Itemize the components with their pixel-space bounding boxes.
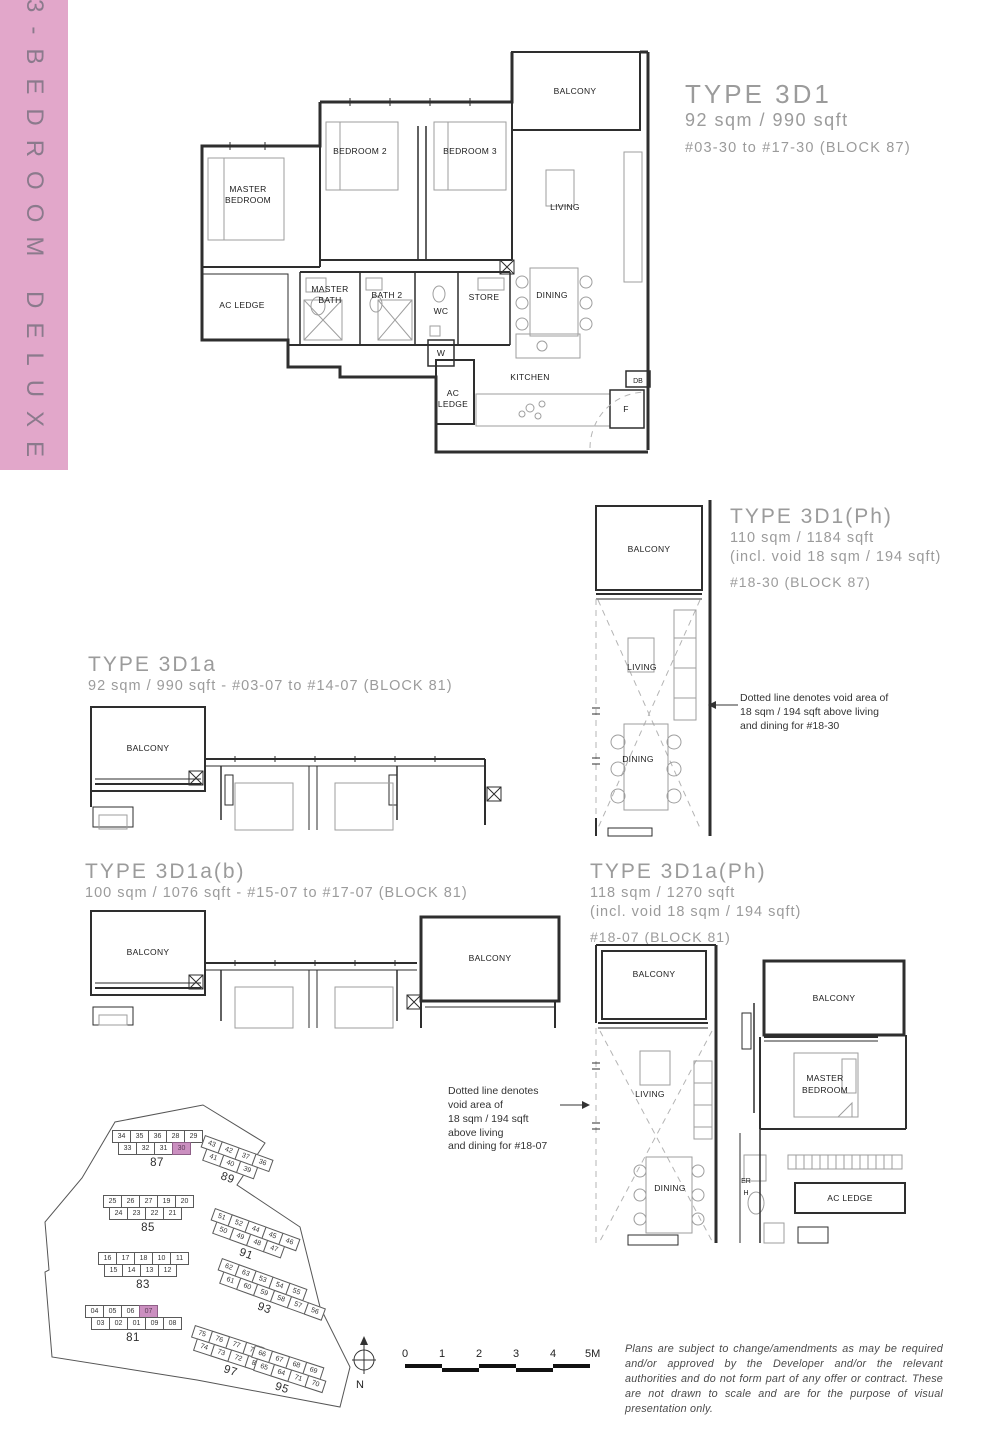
type-3d1a-title-block: TYPE 3D1a 92 sqm / 990 sqft - #03-07 to … <box>88 653 453 696</box>
siteplan-block-87: 34353628293332313087 <box>112 1130 202 1169</box>
room-label-dining: DINING <box>536 290 568 300</box>
plan-title: TYPE 3D1a(Ph) <box>590 860 801 884</box>
plan-subtitle: 92 sqm / 990 sqft - #03-07 to #14-07 (BL… <box>88 677 453 696</box>
siteplan-unit-33: 33 <box>118 1142 137 1155</box>
floorplan-type-3d1aph: BALCONY BALCONY LIVING DINING MASTER BED… <box>588 943 960 1245</box>
room-label-bedroom2: BEDROOM 2 <box>333 146 387 156</box>
north-label: N <box>356 1379 364 1391</box>
scale-tick: 1 <box>439 1348 445 1360</box>
room-label-master-bedroom: MASTER <box>229 184 266 194</box>
category-banner: 3-BEDROOM DELUXE <box>0 0 68 470</box>
room-label-master-bath-2: BATH <box>318 295 341 305</box>
void-note-line: and dining for #18-07 <box>448 1140 560 1154</box>
siteplan-block-label-87: 87 <box>112 1157 202 1169</box>
room-label-wc: WC <box>434 306 449 316</box>
siteplan-unit-01: 01 <box>127 1317 146 1330</box>
siteplan-unit-09: 09 <box>145 1317 164 1330</box>
siteplan-unit-08: 08 <box>163 1317 182 1330</box>
siteplan-unit-13: 13 <box>140 1264 159 1277</box>
scale-segment <box>553 1364 590 1368</box>
floorplan-type-3d1ph: BALCONY LIVING DINING <box>588 498 718 838</box>
plan-title: TYPE 3D1a(b) <box>85 860 468 884</box>
type-3d1ab-title-block: TYPE 3D1a(b) 100 sqm / 1076 sqft - #15-0… <box>85 860 468 903</box>
siteplan-unit-31: 31 <box>154 1142 173 1155</box>
room-label-fridge: F <box>623 404 629 414</box>
scale-segment <box>516 1368 553 1372</box>
scale-segment <box>479 1364 516 1368</box>
room-label-db: DB <box>633 378 643 385</box>
category-banner-label: 3-BEDROOM DELUXE <box>20 0 48 471</box>
room-label-balcony: BALCONY <box>127 947 170 957</box>
scale-tick: 0 <box>402 1348 408 1360</box>
void-note-line: Dotted line denotes void area of <box>448 1085 560 1113</box>
floorplan-type-3d1ab: BALCONY BALCONY <box>85 903 565 1028</box>
scale-tick: 4 <box>550 1348 556 1360</box>
scale-tick: 3 <box>513 1348 519 1360</box>
void-note-3d1ph: Dotted line denotes void area of 18 sqm … <box>740 692 920 734</box>
siteplan-unit-23: 23 <box>127 1207 146 1220</box>
void-note-arrow <box>560 1100 590 1110</box>
room-label-store: STORE <box>469 292 500 302</box>
room-label-fragment: ER <box>741 1178 751 1185</box>
void-note-3d1aph: Dotted line denotes void area of 18 sqm … <box>448 1085 560 1154</box>
room-label-master-bedroom-2: BEDROOM <box>802 1085 848 1095</box>
plan-void: (incl. void 18 sqm / 194 sqft) <box>590 903 801 922</box>
type-3d1aph-title-block: TYPE 3D1a(Ph) 118 sqm / 1270 sqft (incl.… <box>590 860 801 945</box>
room-label-ac-ledge2: AC <box>447 388 459 398</box>
north-arrow-icon: N <box>346 1336 382 1392</box>
floorplan-type-3d1a: BALCONY <box>85 695 505 830</box>
siteplan-unit-14: 14 <box>122 1264 141 1277</box>
siteplan-block-81: 04050607030201090881 <box>85 1305 181 1344</box>
siteplan-block-label-83: 83 <box>98 1279 188 1291</box>
siteplan-unit-22: 22 <box>145 1207 164 1220</box>
siteplan-unit-21: 21 <box>163 1207 182 1220</box>
void-note-arrow <box>708 700 738 710</box>
room-label-balcony: BALCONY <box>554 86 597 96</box>
room-label-living: LIVING <box>635 1089 665 1099</box>
room-label-living: LIVING <box>550 202 580 212</box>
scale-segment <box>442 1368 479 1372</box>
scale-bar: 0 1 2 3 4 5M <box>405 1348 601 1376</box>
room-label-living: LIVING <box>627 662 657 672</box>
siteplan-unit-24: 24 <box>109 1207 128 1220</box>
plan-area: 110 sqm / 1184 sqft <box>730 529 941 548</box>
room-label-washer: W <box>437 348 445 358</box>
scale-tick: 2 <box>476 1348 482 1360</box>
window-marker-icon <box>189 771 203 785</box>
room-label-ac-ledge2-2: LEDGE <box>438 399 468 409</box>
plan-title: TYPE 3D1 <box>685 80 911 109</box>
window-marker-icon <box>407 995 421 1009</box>
room-label-dining: DINING <box>654 1183 686 1193</box>
room-label-ac-ledge: AC LEDGE <box>827 1193 872 1203</box>
room-label-balcony2: BALCONY <box>813 993 856 1003</box>
window-marker-icon <box>189 975 203 989</box>
room-label-bedroom3: BEDROOM 3 <box>443 146 497 156</box>
void-note-line: Dotted line denotes void area of <box>740 692 920 706</box>
room-label-balcony: BALCONY <box>127 743 170 753</box>
plan-void: (incl. void 18 sqm / 194 sqft) <box>730 548 941 567</box>
siteplan-block-83: 16171810111514131283 <box>98 1252 188 1291</box>
siteplan-unit-03: 03 <box>91 1317 110 1330</box>
room-label-fragment: H <box>743 1190 748 1197</box>
plan-area: 118 sqm / 1270 sqft <box>590 884 801 903</box>
scale-tick: 5M <box>585 1348 600 1360</box>
plan-subtitle: 100 sqm / 1076 sqft - #15-07 to #17-07 (… <box>85 884 468 903</box>
room-label-master-bedroom-2: BEDROOM <box>225 195 271 205</box>
plan-area: 92 sqm / 990 sqft <box>685 109 911 132</box>
room-label-bath2: BATH 2 <box>372 290 403 300</box>
plan-title: TYPE 3D1(Ph) <box>730 505 941 529</box>
siteplan-unit-12: 12 <box>158 1264 177 1277</box>
siteplan-unit-32: 32 <box>136 1142 155 1155</box>
void-note-line: 18 sqm / 194 sqft above living <box>740 706 920 720</box>
siteplan-unit-30: 30 <box>172 1142 191 1155</box>
room-label-master-bath: MASTER <box>311 284 348 294</box>
disclaimer-text: Plans are subject to change/amendments a… <box>625 1342 943 1416</box>
scale-segment <box>405 1364 442 1368</box>
type-3d1ph-title-block: TYPE 3D1(Ph) 110 sqm / 1184 sqft (incl. … <box>730 505 941 590</box>
room-label-ac-ledge: AC LEDGE <box>219 300 264 310</box>
brochure-page: 3-BEDROOM DELUXE TYPE 3D1 92 sqm / 990 s… <box>0 0 1000 1434</box>
void-note-line: and dining for #18-30 <box>740 720 920 734</box>
siteplan-unit-15: 15 <box>104 1264 123 1277</box>
siteplan-unit-02: 02 <box>109 1317 128 1330</box>
siteplan-block-85: 25262719202423222185 <box>103 1195 193 1234</box>
room-label-dining: DINING <box>622 754 654 764</box>
plan-units: #03-30 to #17-30 (BLOCK 87) <box>685 140 911 156</box>
room-label-kitchen: KITCHEN <box>510 372 549 382</box>
siteplan-block-label-81: 81 <box>85 1332 181 1344</box>
void-note-line: 18 sqm / 194 sqft above living <box>448 1113 560 1141</box>
floorplan-type-3d1: BALCONY MASTER BEDROOM BEDROOM 2 BEDROOM… <box>190 42 660 482</box>
room-label-balcony: BALCONY <box>633 969 676 979</box>
plan-units: #18-30 (BLOCK 87) <box>730 574 941 590</box>
type-3d1-title-block: TYPE 3D1 92 sqm / 990 sqft #03-30 to #17… <box>685 80 911 156</box>
window-marker-icon <box>487 787 501 801</box>
plan-title: TYPE 3D1a <box>88 653 453 677</box>
room-label-balcony2: BALCONY <box>469 953 512 963</box>
siteplan-block-label-85: 85 <box>103 1222 193 1234</box>
room-label-master-bedroom: MASTER <box>806 1073 843 1083</box>
room-label-balcony: BALCONY <box>628 544 671 554</box>
